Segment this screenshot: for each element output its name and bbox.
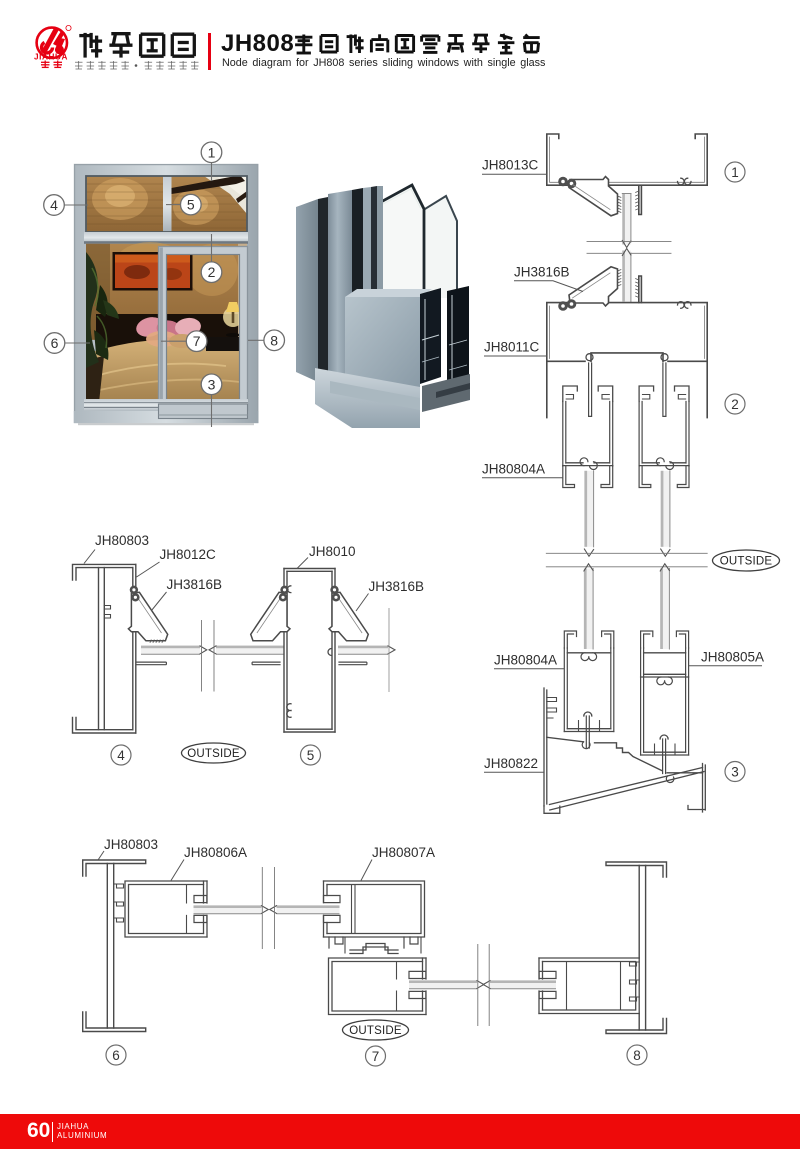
svg-text:1: 1 bbox=[208, 144, 216, 160]
svg-text:2: 2 bbox=[731, 397, 739, 412]
svg-text:JH3816B: JH3816B bbox=[369, 579, 425, 594]
svg-text:JH80804A: JH80804A bbox=[482, 462, 545, 477]
svg-text:JH80806A: JH80806A bbox=[184, 845, 247, 860]
svg-text:4: 4 bbox=[50, 197, 58, 213]
svg-text:7: 7 bbox=[372, 1049, 380, 1064]
svg-text:5: 5 bbox=[187, 197, 195, 213]
svg-text:JH8012C: JH8012C bbox=[160, 547, 217, 562]
svg-text:4: 4 bbox=[117, 748, 125, 763]
svg-text:JH80805A: JH80805A bbox=[701, 650, 764, 665]
svg-text:JH80803: JH80803 bbox=[95, 533, 149, 548]
svg-text:OUTSIDE: OUTSIDE bbox=[720, 556, 773, 568]
svg-text:JH3816B: JH3816B bbox=[514, 265, 570, 280]
svg-text:JH8013C: JH8013C bbox=[482, 158, 539, 173]
svg-text:JH80804A: JH80804A bbox=[494, 653, 557, 668]
svg-text:6: 6 bbox=[112, 1048, 120, 1063]
svg-text:6: 6 bbox=[51, 335, 59, 351]
svg-text:JH3816B: JH3816B bbox=[167, 577, 223, 592]
svg-text:OUTSIDE: OUTSIDE bbox=[187, 748, 240, 760]
svg-text:8: 8 bbox=[633, 1048, 641, 1063]
svg-text:2: 2 bbox=[208, 264, 216, 280]
svg-text:JH80807A: JH80807A bbox=[372, 845, 435, 860]
svg-text:JH80822: JH80822 bbox=[484, 756, 538, 771]
svg-text:8: 8 bbox=[270, 332, 278, 348]
svg-text:JH8011C: JH8011C bbox=[484, 340, 540, 355]
svg-text:3: 3 bbox=[731, 764, 739, 779]
svg-text:1: 1 bbox=[731, 165, 739, 180]
svg-text:JH8010: JH8010 bbox=[309, 544, 356, 559]
svg-text:7: 7 bbox=[193, 333, 201, 349]
svg-text:3: 3 bbox=[208, 376, 216, 392]
svg-text:5: 5 bbox=[307, 748, 315, 763]
svg-text:JH80803: JH80803 bbox=[104, 837, 158, 852]
svg-text:OUTSIDE: OUTSIDE bbox=[349, 1025, 402, 1037]
